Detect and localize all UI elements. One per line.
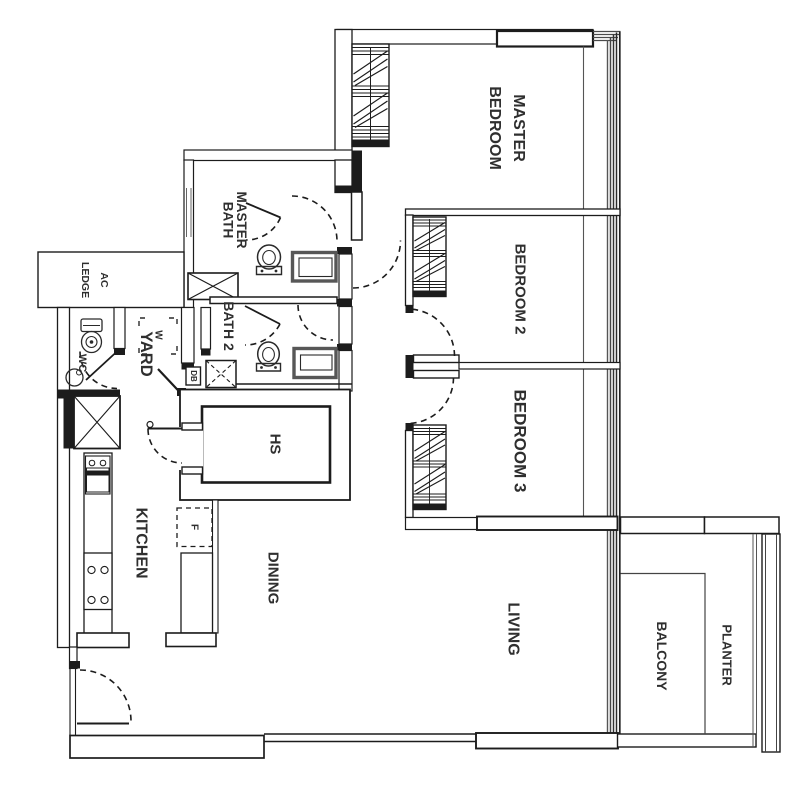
svg-text:F: F xyxy=(189,524,200,530)
svg-text:BEDROOM 2: BEDROOM 2 xyxy=(512,244,529,335)
svg-text:DINING: DINING xyxy=(265,552,282,605)
svg-text:DB: DB xyxy=(189,370,198,382)
svg-text:W: W xyxy=(153,330,164,340)
svg-text:YARD: YARD xyxy=(137,331,155,376)
svg-text:BATH 2: BATH 2 xyxy=(221,301,237,351)
svg-text:LIVING: LIVING xyxy=(505,602,522,655)
svg-text:BALCONY: BALCONY xyxy=(654,621,670,691)
svg-text:WC: WC xyxy=(76,354,88,372)
svg-text:BEDROOM 3: BEDROOM 3 xyxy=(511,390,530,493)
svg-text:KITCHEN: KITCHEN xyxy=(133,507,150,578)
svg-text:HS: HS xyxy=(267,434,284,455)
svg-text:PLANTER: PLANTER xyxy=(720,624,735,686)
